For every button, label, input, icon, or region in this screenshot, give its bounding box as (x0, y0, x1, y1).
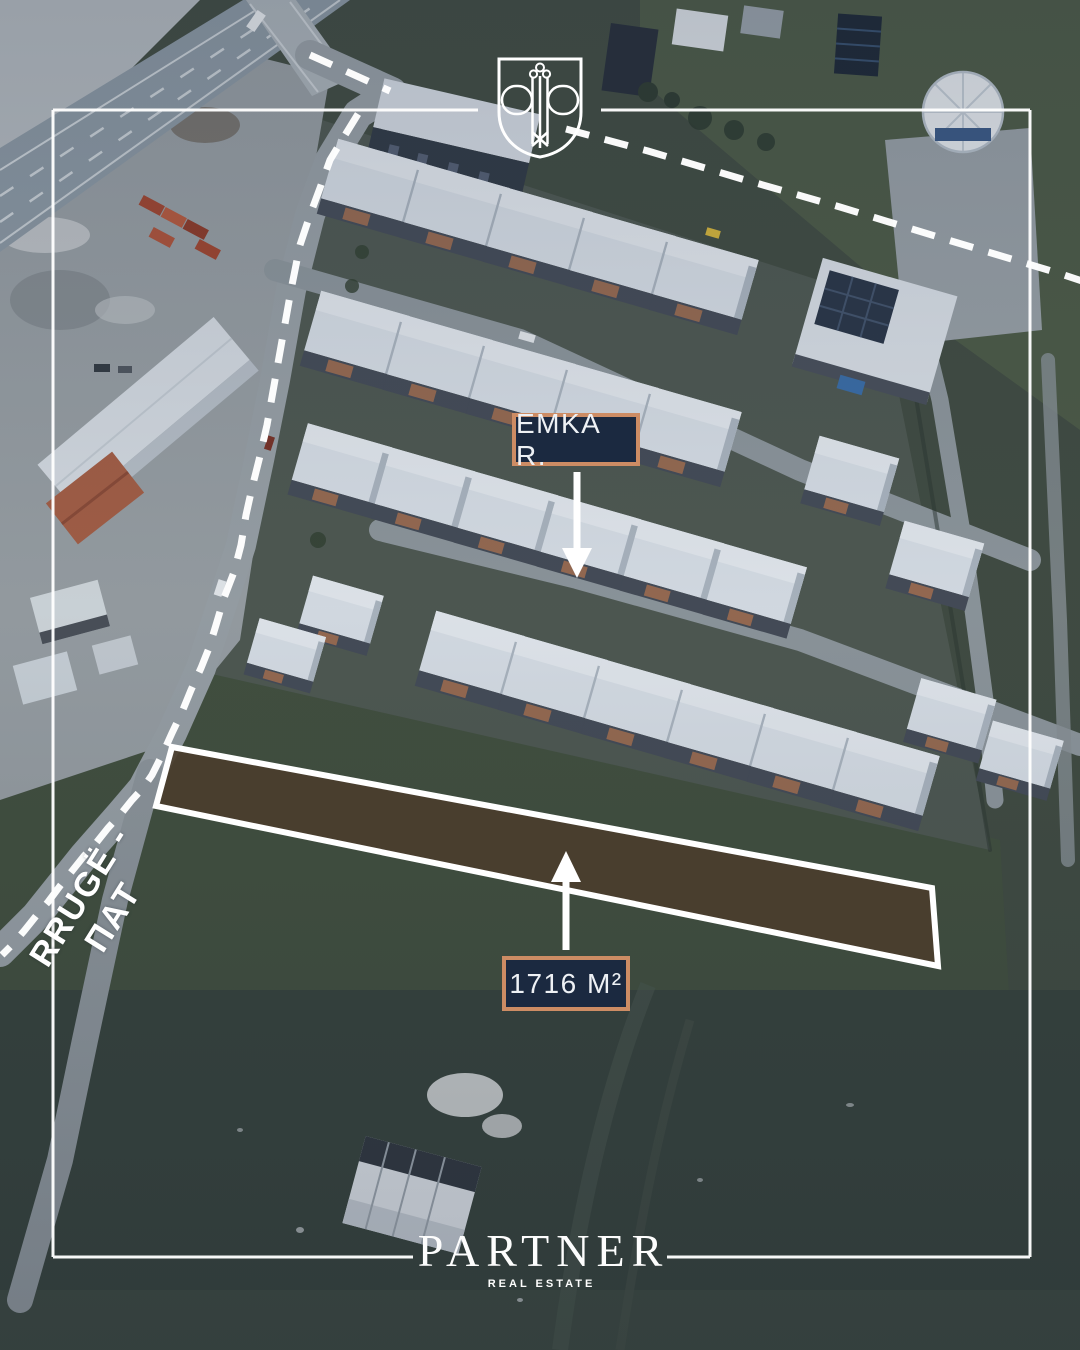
partner-shield-crest-icon (496, 56, 584, 160)
aerial-photo (0, 0, 1080, 1350)
dusk-tint (0, 0, 1080, 1350)
parcel-area-label: 1716 M² (502, 956, 630, 1011)
brand-name: PARTNER (0, 1226, 1080, 1277)
brand-tagline: REAL ESTATE (0, 1278, 1080, 1290)
street-name-label: EMKA R. (512, 413, 640, 466)
brand-wordmark: PARTNER REAL ESTATE (0, 1226, 1080, 1290)
real-estate-listing-image: EMKA R. 1716 M² RRUGË - ПАТ PARTNER REAL… (0, 0, 1080, 1350)
